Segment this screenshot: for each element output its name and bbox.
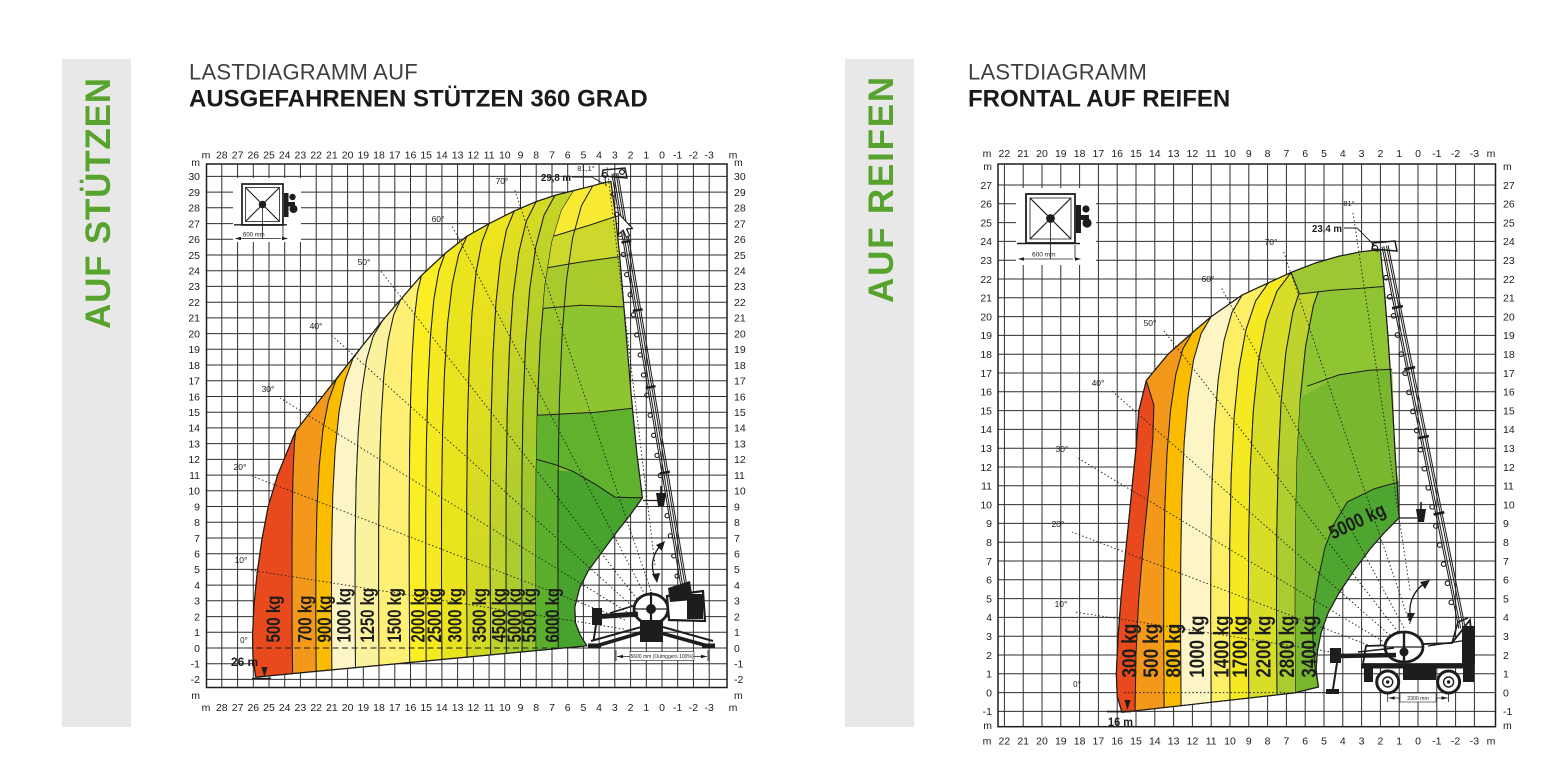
svg-text:AUSGEFAHRENEN STÜTZEN 360 GRAD: AUSGEFAHRENEN STÜTZEN 360 GRAD bbox=[189, 86, 648, 113]
svg-text:10: 10 bbox=[1503, 499, 1515, 511]
svg-text:14: 14 bbox=[436, 150, 448, 162]
svg-text:13: 13 bbox=[1168, 148, 1180, 160]
svg-text:15: 15 bbox=[1503, 405, 1515, 417]
svg-text:4: 4 bbox=[596, 150, 602, 162]
svg-text:11: 11 bbox=[1206, 736, 1217, 748]
svg-text:20: 20 bbox=[188, 328, 200, 340]
svg-text:19: 19 bbox=[188, 344, 200, 356]
svg-text:0°: 0° bbox=[240, 636, 248, 645]
svg-text:81,1°: 81,1° bbox=[577, 164, 595, 173]
svg-text:15: 15 bbox=[420, 150, 432, 162]
svg-text:40°: 40° bbox=[310, 321, 323, 331]
svg-text:23: 23 bbox=[734, 281, 746, 293]
svg-text:6000 kg: 6000 kg bbox=[543, 588, 564, 643]
svg-text:3500 kg: 3500 kg bbox=[470, 588, 491, 643]
svg-text:17: 17 bbox=[980, 368, 992, 380]
svg-text:3: 3 bbox=[194, 596, 200, 608]
svg-text:22: 22 bbox=[734, 297, 746, 309]
svg-text:AUF REIFEN: AUF REIFEN bbox=[862, 75, 901, 303]
svg-text:1: 1 bbox=[986, 669, 992, 681]
svg-text:600 mm: 600 mm bbox=[243, 233, 265, 239]
svg-text:18: 18 bbox=[1074, 736, 1086, 748]
svg-text:21: 21 bbox=[1503, 293, 1515, 305]
svg-text:25: 25 bbox=[263, 702, 275, 714]
svg-text:29: 29 bbox=[734, 187, 746, 199]
svg-text:2200 kg: 2200 kg bbox=[1252, 616, 1276, 678]
svg-text:50°: 50° bbox=[358, 257, 371, 267]
svg-text:3: 3 bbox=[986, 631, 992, 643]
svg-text:30°: 30° bbox=[1056, 444, 1069, 454]
svg-text:24: 24 bbox=[980, 236, 992, 248]
svg-text:24: 24 bbox=[279, 150, 291, 162]
svg-text:8: 8 bbox=[986, 537, 992, 549]
svg-text:15: 15 bbox=[420, 702, 432, 714]
svg-text:22: 22 bbox=[999, 736, 1011, 748]
svg-text:24: 24 bbox=[1503, 236, 1515, 248]
svg-text:12: 12 bbox=[734, 454, 746, 466]
svg-text:6: 6 bbox=[194, 549, 200, 561]
svg-text:26: 26 bbox=[1503, 199, 1515, 211]
svg-text:5: 5 bbox=[986, 593, 992, 605]
svg-text:60°: 60° bbox=[432, 214, 445, 224]
svg-text:17: 17 bbox=[389, 702, 401, 714]
svg-text:18: 18 bbox=[373, 150, 385, 162]
svg-text:5: 5 bbox=[1503, 593, 1509, 605]
svg-text:11: 11 bbox=[734, 470, 745, 482]
svg-text:5: 5 bbox=[1321, 148, 1327, 160]
svg-text:23: 23 bbox=[295, 702, 307, 714]
svg-text:20: 20 bbox=[342, 150, 354, 162]
svg-text:19: 19 bbox=[1055, 736, 1067, 748]
svg-text:m: m bbox=[191, 690, 200, 702]
svg-text:m: m bbox=[734, 690, 743, 702]
svg-text:10°: 10° bbox=[1055, 599, 1068, 609]
svg-text:25: 25 bbox=[980, 217, 992, 229]
svg-text:13: 13 bbox=[734, 438, 746, 450]
svg-text:m: m bbox=[202, 150, 211, 162]
svg-text:8: 8 bbox=[1265, 148, 1271, 160]
svg-text:1: 1 bbox=[194, 627, 200, 639]
svg-text:3: 3 bbox=[1503, 631, 1509, 643]
svg-text:m: m bbox=[191, 157, 200, 169]
svg-text:1500 kg: 1500 kg bbox=[385, 588, 406, 643]
svg-text:7: 7 bbox=[1283, 736, 1289, 748]
svg-text:1: 1 bbox=[1396, 736, 1402, 748]
svg-text:0: 0 bbox=[659, 150, 665, 162]
svg-text:9: 9 bbox=[1503, 518, 1509, 530]
svg-text:8: 8 bbox=[734, 517, 740, 529]
svg-text:20: 20 bbox=[1036, 148, 1048, 160]
svg-text:4: 4 bbox=[986, 612, 992, 624]
svg-text:300 kg: 300 kg bbox=[1117, 624, 1141, 678]
svg-text:11: 11 bbox=[981, 481, 992, 493]
svg-text:2: 2 bbox=[1503, 650, 1509, 662]
svg-text:0: 0 bbox=[1415, 736, 1421, 748]
svg-text:15: 15 bbox=[980, 405, 992, 417]
svg-text:8: 8 bbox=[1265, 736, 1271, 748]
svg-text:3: 3 bbox=[612, 150, 618, 162]
svg-text:17: 17 bbox=[1503, 368, 1515, 380]
svg-text:5: 5 bbox=[734, 564, 740, 576]
svg-text:28: 28 bbox=[734, 203, 746, 215]
svg-text:22: 22 bbox=[188, 297, 200, 309]
svg-text:6: 6 bbox=[1302, 736, 1308, 748]
svg-text:-1: -1 bbox=[1432, 736, 1441, 748]
svg-text:18: 18 bbox=[734, 360, 746, 372]
svg-text:60°: 60° bbox=[1202, 274, 1215, 284]
svg-text:50°: 50° bbox=[1144, 318, 1157, 328]
svg-text:5600 mm (Outriggers 100%): 5600 mm (Outriggers 100%) bbox=[630, 654, 693, 660]
svg-text:10: 10 bbox=[499, 702, 511, 714]
svg-text:1: 1 bbox=[643, 150, 649, 162]
svg-text:29: 29 bbox=[188, 187, 200, 199]
svg-text:70°: 70° bbox=[1265, 237, 1278, 247]
svg-text:17: 17 bbox=[188, 376, 200, 388]
svg-text:2500 kg: 2500 kg bbox=[425, 588, 446, 643]
svg-text:16 m: 16 m bbox=[1108, 717, 1133, 729]
svg-text:1: 1 bbox=[734, 627, 740, 639]
svg-text:20: 20 bbox=[1036, 736, 1048, 748]
svg-text:2: 2 bbox=[628, 702, 634, 714]
svg-text:22: 22 bbox=[310, 702, 322, 714]
svg-text:2: 2 bbox=[734, 611, 740, 623]
svg-text:16: 16 bbox=[1111, 736, 1123, 748]
svg-text:-3: -3 bbox=[1470, 148, 1479, 160]
svg-text:-3: -3 bbox=[1470, 736, 1479, 748]
svg-text:1000 kg: 1000 kg bbox=[335, 588, 356, 643]
svg-text:10: 10 bbox=[1224, 148, 1236, 160]
svg-text:9: 9 bbox=[518, 702, 524, 714]
svg-text:17: 17 bbox=[1093, 148, 1105, 160]
svg-text:7: 7 bbox=[549, 702, 555, 714]
svg-text:15: 15 bbox=[1130, 148, 1142, 160]
svg-text:21: 21 bbox=[188, 313, 200, 325]
svg-text:9: 9 bbox=[518, 150, 524, 162]
svg-text:20: 20 bbox=[734, 328, 746, 340]
svg-text:10: 10 bbox=[1224, 736, 1236, 748]
svg-text:21: 21 bbox=[1017, 148, 1029, 160]
svg-text:5: 5 bbox=[580, 702, 586, 714]
svg-text:500 kg: 500 kg bbox=[1139, 624, 1163, 678]
svg-text:29,8 m: 29,8 m bbox=[541, 172, 571, 184]
svg-text:m: m bbox=[202, 702, 211, 714]
svg-text:18: 18 bbox=[1503, 349, 1515, 361]
svg-text:27: 27 bbox=[232, 702, 244, 714]
svg-text:7: 7 bbox=[1503, 556, 1509, 568]
svg-text:6: 6 bbox=[734, 549, 740, 561]
svg-text:19: 19 bbox=[980, 330, 992, 342]
svg-text:m: m bbox=[983, 148, 992, 160]
svg-text:14: 14 bbox=[436, 702, 448, 714]
svg-text:7: 7 bbox=[549, 150, 555, 162]
svg-text:8: 8 bbox=[1503, 537, 1509, 549]
svg-text:20: 20 bbox=[980, 311, 992, 323]
svg-text:20: 20 bbox=[1503, 311, 1515, 323]
svg-text:16: 16 bbox=[1503, 387, 1515, 399]
svg-text:5: 5 bbox=[580, 150, 586, 162]
svg-text:FRONTAL AUF REIFEN: FRONTAL AUF REIFEN bbox=[968, 86, 1230, 113]
svg-text:17: 17 bbox=[734, 376, 746, 388]
svg-text:25: 25 bbox=[734, 250, 746, 262]
svg-text:4: 4 bbox=[1503, 612, 1509, 624]
svg-text:4: 4 bbox=[1340, 148, 1346, 160]
svg-text:2: 2 bbox=[1377, 148, 1383, 160]
svg-text:-2: -2 bbox=[689, 702, 698, 714]
svg-text:3400 kg: 3400 kg bbox=[1297, 616, 1321, 678]
svg-text:0: 0 bbox=[986, 687, 992, 699]
svg-text:6: 6 bbox=[565, 702, 571, 714]
svg-text:27: 27 bbox=[232, 150, 244, 162]
svg-text:m: m bbox=[734, 157, 743, 169]
svg-text:700 kg: 700 kg bbox=[295, 596, 316, 643]
svg-text:-1: -1 bbox=[673, 150, 682, 162]
svg-text:1: 1 bbox=[643, 702, 649, 714]
svg-text:28: 28 bbox=[216, 150, 228, 162]
svg-text:11: 11 bbox=[484, 150, 495, 162]
svg-text:26: 26 bbox=[734, 234, 746, 246]
svg-text:10: 10 bbox=[499, 150, 511, 162]
svg-text:3: 3 bbox=[612, 702, 618, 714]
svg-text:6: 6 bbox=[1503, 575, 1509, 587]
svg-text:70°: 70° bbox=[496, 176, 509, 186]
svg-text:16: 16 bbox=[1111, 148, 1123, 160]
svg-text:16: 16 bbox=[188, 391, 200, 403]
svg-text:13: 13 bbox=[1503, 443, 1515, 455]
svg-text:4: 4 bbox=[194, 580, 200, 592]
svg-text:-1: -1 bbox=[673, 702, 682, 714]
svg-text:20°: 20° bbox=[1052, 519, 1065, 529]
svg-text:7: 7 bbox=[986, 556, 992, 568]
svg-text:m: m bbox=[983, 720, 992, 732]
svg-text:30: 30 bbox=[734, 171, 746, 183]
svg-text:12: 12 bbox=[1187, 736, 1199, 748]
svg-text:5: 5 bbox=[194, 564, 200, 576]
svg-text:12: 12 bbox=[1187, 148, 1199, 160]
svg-text:4: 4 bbox=[596, 702, 602, 714]
svg-text:600 mm: 600 mm bbox=[1032, 252, 1055, 259]
svg-text:m: m bbox=[983, 736, 992, 748]
svg-text:2: 2 bbox=[986, 650, 992, 662]
svg-text:-2: -2 bbox=[734, 674, 743, 686]
svg-text:22: 22 bbox=[1503, 274, 1515, 286]
svg-text:0: 0 bbox=[659, 702, 665, 714]
svg-text:6: 6 bbox=[1302, 148, 1308, 160]
svg-text:m: m bbox=[1503, 720, 1512, 732]
svg-text:20°: 20° bbox=[234, 462, 247, 472]
svg-text:8: 8 bbox=[194, 517, 200, 529]
svg-text:m: m bbox=[1487, 736, 1496, 748]
svg-text:0: 0 bbox=[194, 643, 200, 655]
svg-text:900 kg: 900 kg bbox=[315, 596, 336, 643]
svg-text:1250 kg: 1250 kg bbox=[358, 588, 379, 643]
svg-text:0°: 0° bbox=[1073, 680, 1081, 689]
svg-text:22: 22 bbox=[999, 148, 1011, 160]
svg-text:12: 12 bbox=[188, 454, 200, 466]
svg-text:m: m bbox=[1487, 148, 1496, 160]
svg-text:12: 12 bbox=[468, 702, 480, 714]
svg-text:-1: -1 bbox=[734, 659, 743, 671]
svg-text:LASTDIAGRAMM: LASTDIAGRAMM bbox=[968, 60, 1147, 85]
svg-text:-1: -1 bbox=[1432, 148, 1441, 160]
svg-text:-2: -2 bbox=[689, 150, 698, 162]
svg-text:9: 9 bbox=[1246, 736, 1252, 748]
svg-text:LASTDIAGRAMM AUF: LASTDIAGRAMM AUF bbox=[189, 60, 418, 85]
svg-text:11: 11 bbox=[189, 470, 200, 482]
svg-text:3: 3 bbox=[1359, 148, 1365, 160]
svg-text:13: 13 bbox=[1168, 736, 1180, 748]
svg-text:14: 14 bbox=[188, 423, 200, 435]
svg-text:-2: -2 bbox=[1451, 736, 1460, 748]
svg-text:1: 1 bbox=[1396, 148, 1402, 160]
svg-text:800 kg: 800 kg bbox=[1162, 624, 1186, 678]
svg-text:14: 14 bbox=[980, 424, 992, 436]
svg-text:10: 10 bbox=[188, 486, 200, 498]
svg-text:15: 15 bbox=[188, 407, 200, 419]
svg-text:21: 21 bbox=[326, 150, 338, 162]
svg-text:15: 15 bbox=[734, 407, 746, 419]
svg-text:12: 12 bbox=[1503, 462, 1515, 474]
svg-text:14: 14 bbox=[1503, 424, 1515, 436]
svg-text:4: 4 bbox=[1340, 736, 1346, 748]
svg-text:24: 24 bbox=[188, 266, 200, 278]
svg-text:m: m bbox=[1503, 161, 1512, 173]
svg-text:1: 1 bbox=[1503, 669, 1509, 681]
svg-text:17: 17 bbox=[389, 150, 401, 162]
svg-text:-2: -2 bbox=[191, 674, 200, 686]
svg-text:22: 22 bbox=[310, 150, 322, 162]
svg-text:25: 25 bbox=[1503, 217, 1515, 229]
svg-text:m: m bbox=[983, 161, 992, 173]
svg-text:-3: -3 bbox=[705, 702, 714, 714]
svg-text:25: 25 bbox=[263, 150, 275, 162]
svg-text:0: 0 bbox=[1503, 687, 1509, 699]
svg-text:12: 12 bbox=[468, 150, 480, 162]
svg-text:18: 18 bbox=[1074, 148, 1086, 160]
svg-text:28: 28 bbox=[188, 203, 200, 215]
svg-text:3000 kg: 3000 kg bbox=[446, 588, 467, 643]
svg-text:8: 8 bbox=[533, 150, 539, 162]
svg-text:27: 27 bbox=[734, 218, 746, 230]
svg-text:6: 6 bbox=[565, 150, 571, 162]
svg-text:18: 18 bbox=[188, 360, 200, 372]
svg-text:9: 9 bbox=[194, 501, 200, 513]
svg-text:19: 19 bbox=[357, 150, 369, 162]
svg-text:27: 27 bbox=[188, 218, 200, 230]
svg-text:15: 15 bbox=[1130, 736, 1142, 748]
svg-text:0: 0 bbox=[1415, 148, 1421, 160]
svg-text:26: 26 bbox=[980, 199, 992, 211]
svg-text:18: 18 bbox=[373, 702, 385, 714]
svg-text:11: 11 bbox=[1206, 148, 1217, 160]
svg-text:9: 9 bbox=[986, 518, 992, 530]
svg-text:17: 17 bbox=[1093, 736, 1105, 748]
svg-text:-2: -2 bbox=[1451, 148, 1460, 160]
svg-text:1000 kg: 1000 kg bbox=[1185, 616, 1209, 678]
svg-text:28: 28 bbox=[216, 702, 228, 714]
svg-text:AUF STÜTZEN: AUF STÜTZEN bbox=[79, 77, 118, 329]
svg-text:23: 23 bbox=[1503, 255, 1515, 267]
svg-text:16: 16 bbox=[405, 150, 417, 162]
svg-text:5500 kg: 5500 kg bbox=[520, 588, 541, 643]
svg-text:19: 19 bbox=[734, 344, 746, 356]
svg-text:81°: 81° bbox=[1343, 199, 1354, 208]
svg-text:23,4 m: 23,4 m bbox=[1312, 223, 1342, 235]
svg-text:3: 3 bbox=[1359, 736, 1365, 748]
svg-text:2: 2 bbox=[194, 611, 200, 623]
svg-text:19: 19 bbox=[1055, 148, 1067, 160]
svg-text:7: 7 bbox=[194, 533, 200, 545]
svg-text:0: 0 bbox=[734, 643, 740, 655]
svg-text:7: 7 bbox=[1283, 148, 1289, 160]
svg-text:24: 24 bbox=[279, 702, 291, 714]
svg-text:9: 9 bbox=[1246, 148, 1252, 160]
svg-text:-3: -3 bbox=[705, 150, 714, 162]
svg-text:1700 kg: 1700 kg bbox=[1228, 616, 1252, 678]
svg-text:26: 26 bbox=[247, 150, 259, 162]
svg-text:20: 20 bbox=[342, 702, 354, 714]
svg-text:23: 23 bbox=[188, 281, 200, 293]
svg-text:13: 13 bbox=[980, 443, 992, 455]
svg-text:10°: 10° bbox=[235, 555, 248, 565]
svg-text:22: 22 bbox=[980, 274, 992, 286]
svg-text:30°: 30° bbox=[262, 384, 275, 394]
svg-text:13: 13 bbox=[188, 438, 200, 450]
svg-text:40°: 40° bbox=[1092, 378, 1105, 388]
svg-text:10: 10 bbox=[734, 486, 746, 498]
svg-text:7: 7 bbox=[734, 533, 740, 545]
svg-text:23: 23 bbox=[980, 255, 992, 267]
svg-text:2: 2 bbox=[628, 150, 634, 162]
svg-text:26 m: 26 m bbox=[231, 657, 258, 669]
svg-text:11: 11 bbox=[1503, 481, 1514, 493]
svg-text:-1: -1 bbox=[191, 659, 200, 671]
svg-text:27: 27 bbox=[1503, 180, 1515, 192]
svg-text:12: 12 bbox=[980, 462, 992, 474]
svg-text:21: 21 bbox=[326, 702, 338, 714]
svg-text:10: 10 bbox=[980, 499, 992, 511]
svg-text:5: 5 bbox=[1321, 736, 1327, 748]
svg-text:21: 21 bbox=[1017, 736, 1029, 748]
svg-text:500 kg: 500 kg bbox=[264, 596, 285, 643]
svg-text:16: 16 bbox=[734, 391, 746, 403]
svg-text:23: 23 bbox=[295, 150, 307, 162]
svg-text:13: 13 bbox=[452, 702, 464, 714]
svg-text:6: 6 bbox=[986, 575, 992, 587]
svg-text:25: 25 bbox=[188, 250, 200, 262]
svg-text:26: 26 bbox=[188, 234, 200, 246]
svg-text:16: 16 bbox=[980, 387, 992, 399]
svg-text:16: 16 bbox=[405, 702, 417, 714]
svg-text:13: 13 bbox=[452, 150, 464, 162]
svg-text:21: 21 bbox=[734, 313, 746, 325]
svg-text:14: 14 bbox=[1149, 148, 1161, 160]
svg-text:19: 19 bbox=[357, 702, 369, 714]
svg-text:9: 9 bbox=[734, 501, 740, 513]
svg-text:2800 kg: 2800 kg bbox=[1275, 616, 1299, 678]
svg-text:2300 mm: 2300 mm bbox=[1407, 696, 1429, 702]
svg-text:11: 11 bbox=[484, 702, 495, 714]
svg-text:-1: -1 bbox=[1503, 706, 1512, 718]
svg-text:14: 14 bbox=[1149, 736, 1161, 748]
svg-text:m: m bbox=[729, 702, 738, 714]
svg-text:21: 21 bbox=[980, 293, 992, 305]
svg-text:30: 30 bbox=[188, 171, 200, 183]
svg-text:3: 3 bbox=[734, 596, 740, 608]
svg-text:14: 14 bbox=[734, 423, 746, 435]
svg-text:26: 26 bbox=[247, 702, 259, 714]
svg-text:8: 8 bbox=[533, 702, 539, 714]
svg-text:19: 19 bbox=[1503, 330, 1515, 342]
